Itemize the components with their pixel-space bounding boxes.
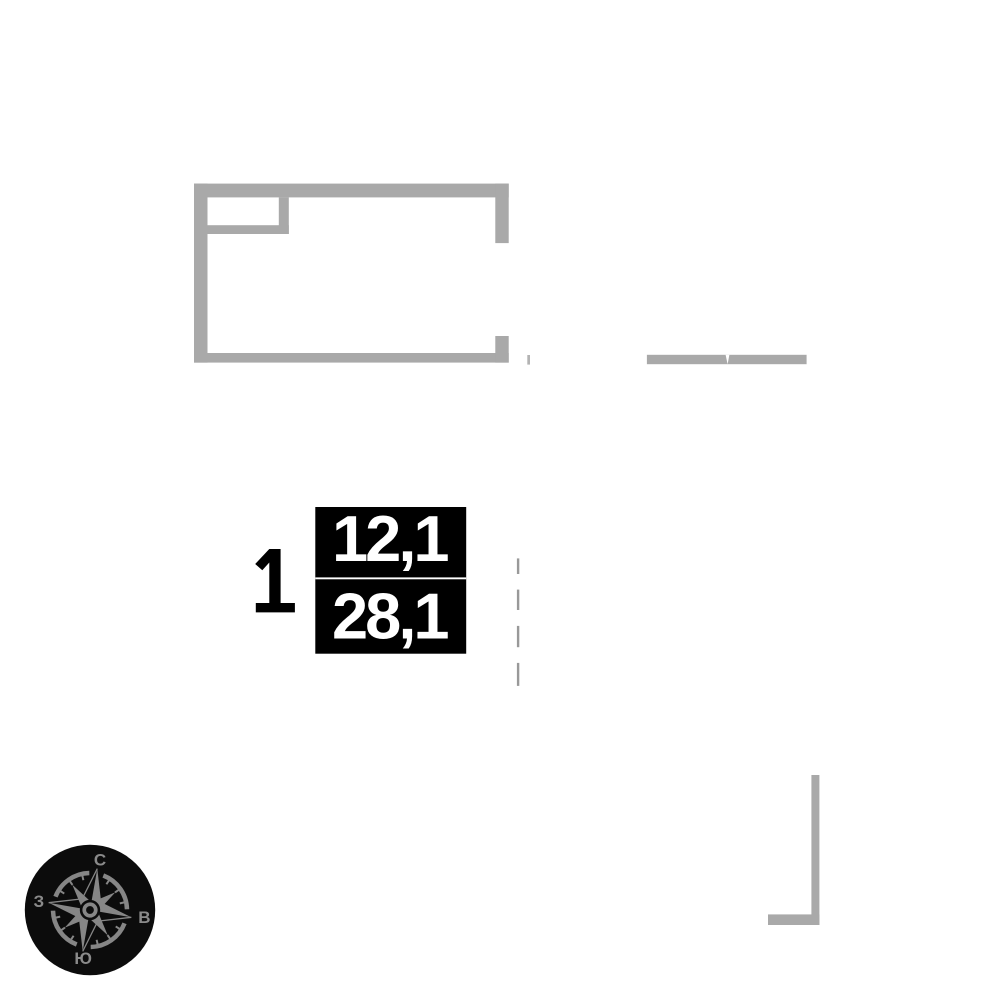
- svg-text:28,1: 28,1: [332, 580, 448, 653]
- svg-text:12,1: 12,1: [332, 502, 448, 575]
- svg-text:В: В: [138, 908, 150, 927]
- svg-text:С: С: [94, 851, 106, 870]
- svg-text:З: З: [33, 892, 44, 911]
- svg-text:Ю: Ю: [74, 949, 92, 968]
